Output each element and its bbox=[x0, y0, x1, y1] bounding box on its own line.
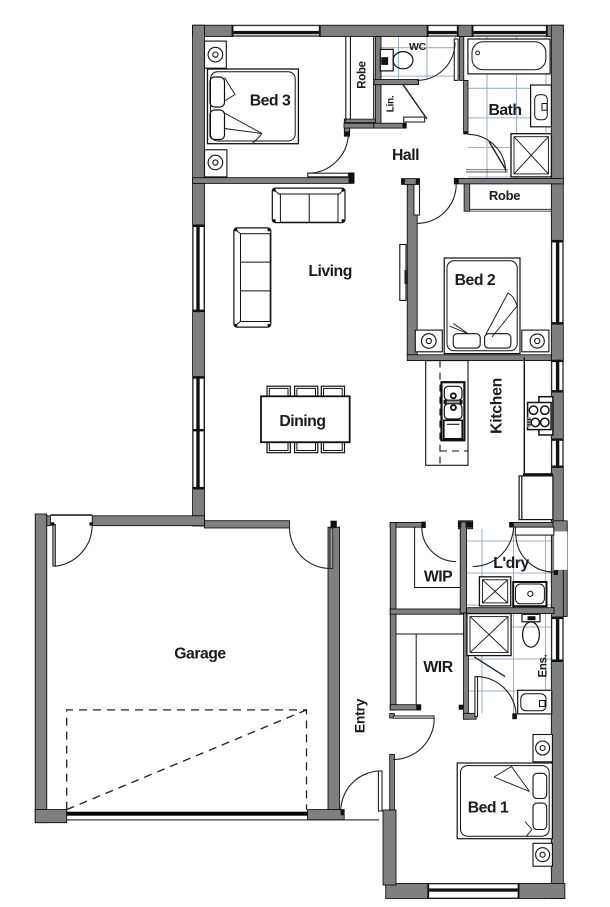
svg-text:Kitchen: Kitchen bbox=[489, 378, 506, 434]
svg-text:Bed 2: Bed 2 bbox=[455, 272, 496, 289]
svg-text:Robe: Robe bbox=[489, 188, 520, 203]
svg-text:Bed 3: Bed 3 bbox=[250, 92, 291, 109]
svg-text:Bath: Bath bbox=[488, 102, 521, 119]
svg-text:L'dry: L'dry bbox=[493, 555, 529, 572]
svg-text:Ens.: Ens. bbox=[538, 654, 550, 677]
svg-text:Hall: Hall bbox=[392, 147, 419, 164]
svg-text:Garage: Garage bbox=[174, 646, 226, 663]
svg-text:WIR: WIR bbox=[423, 659, 453, 676]
svg-text:Entry: Entry bbox=[352, 698, 368, 733]
svg-text:WIP: WIP bbox=[424, 569, 452, 586]
svg-text:Lin.: Lin. bbox=[386, 95, 397, 112]
svg-text:Dining: Dining bbox=[279, 413, 325, 430]
svg-text:Robe: Robe bbox=[357, 61, 369, 89]
svg-text:Living: Living bbox=[308, 263, 352, 280]
svg-text:WC: WC bbox=[409, 41, 427, 53]
svg-text:Bed 1: Bed 1 bbox=[468, 800, 509, 817]
